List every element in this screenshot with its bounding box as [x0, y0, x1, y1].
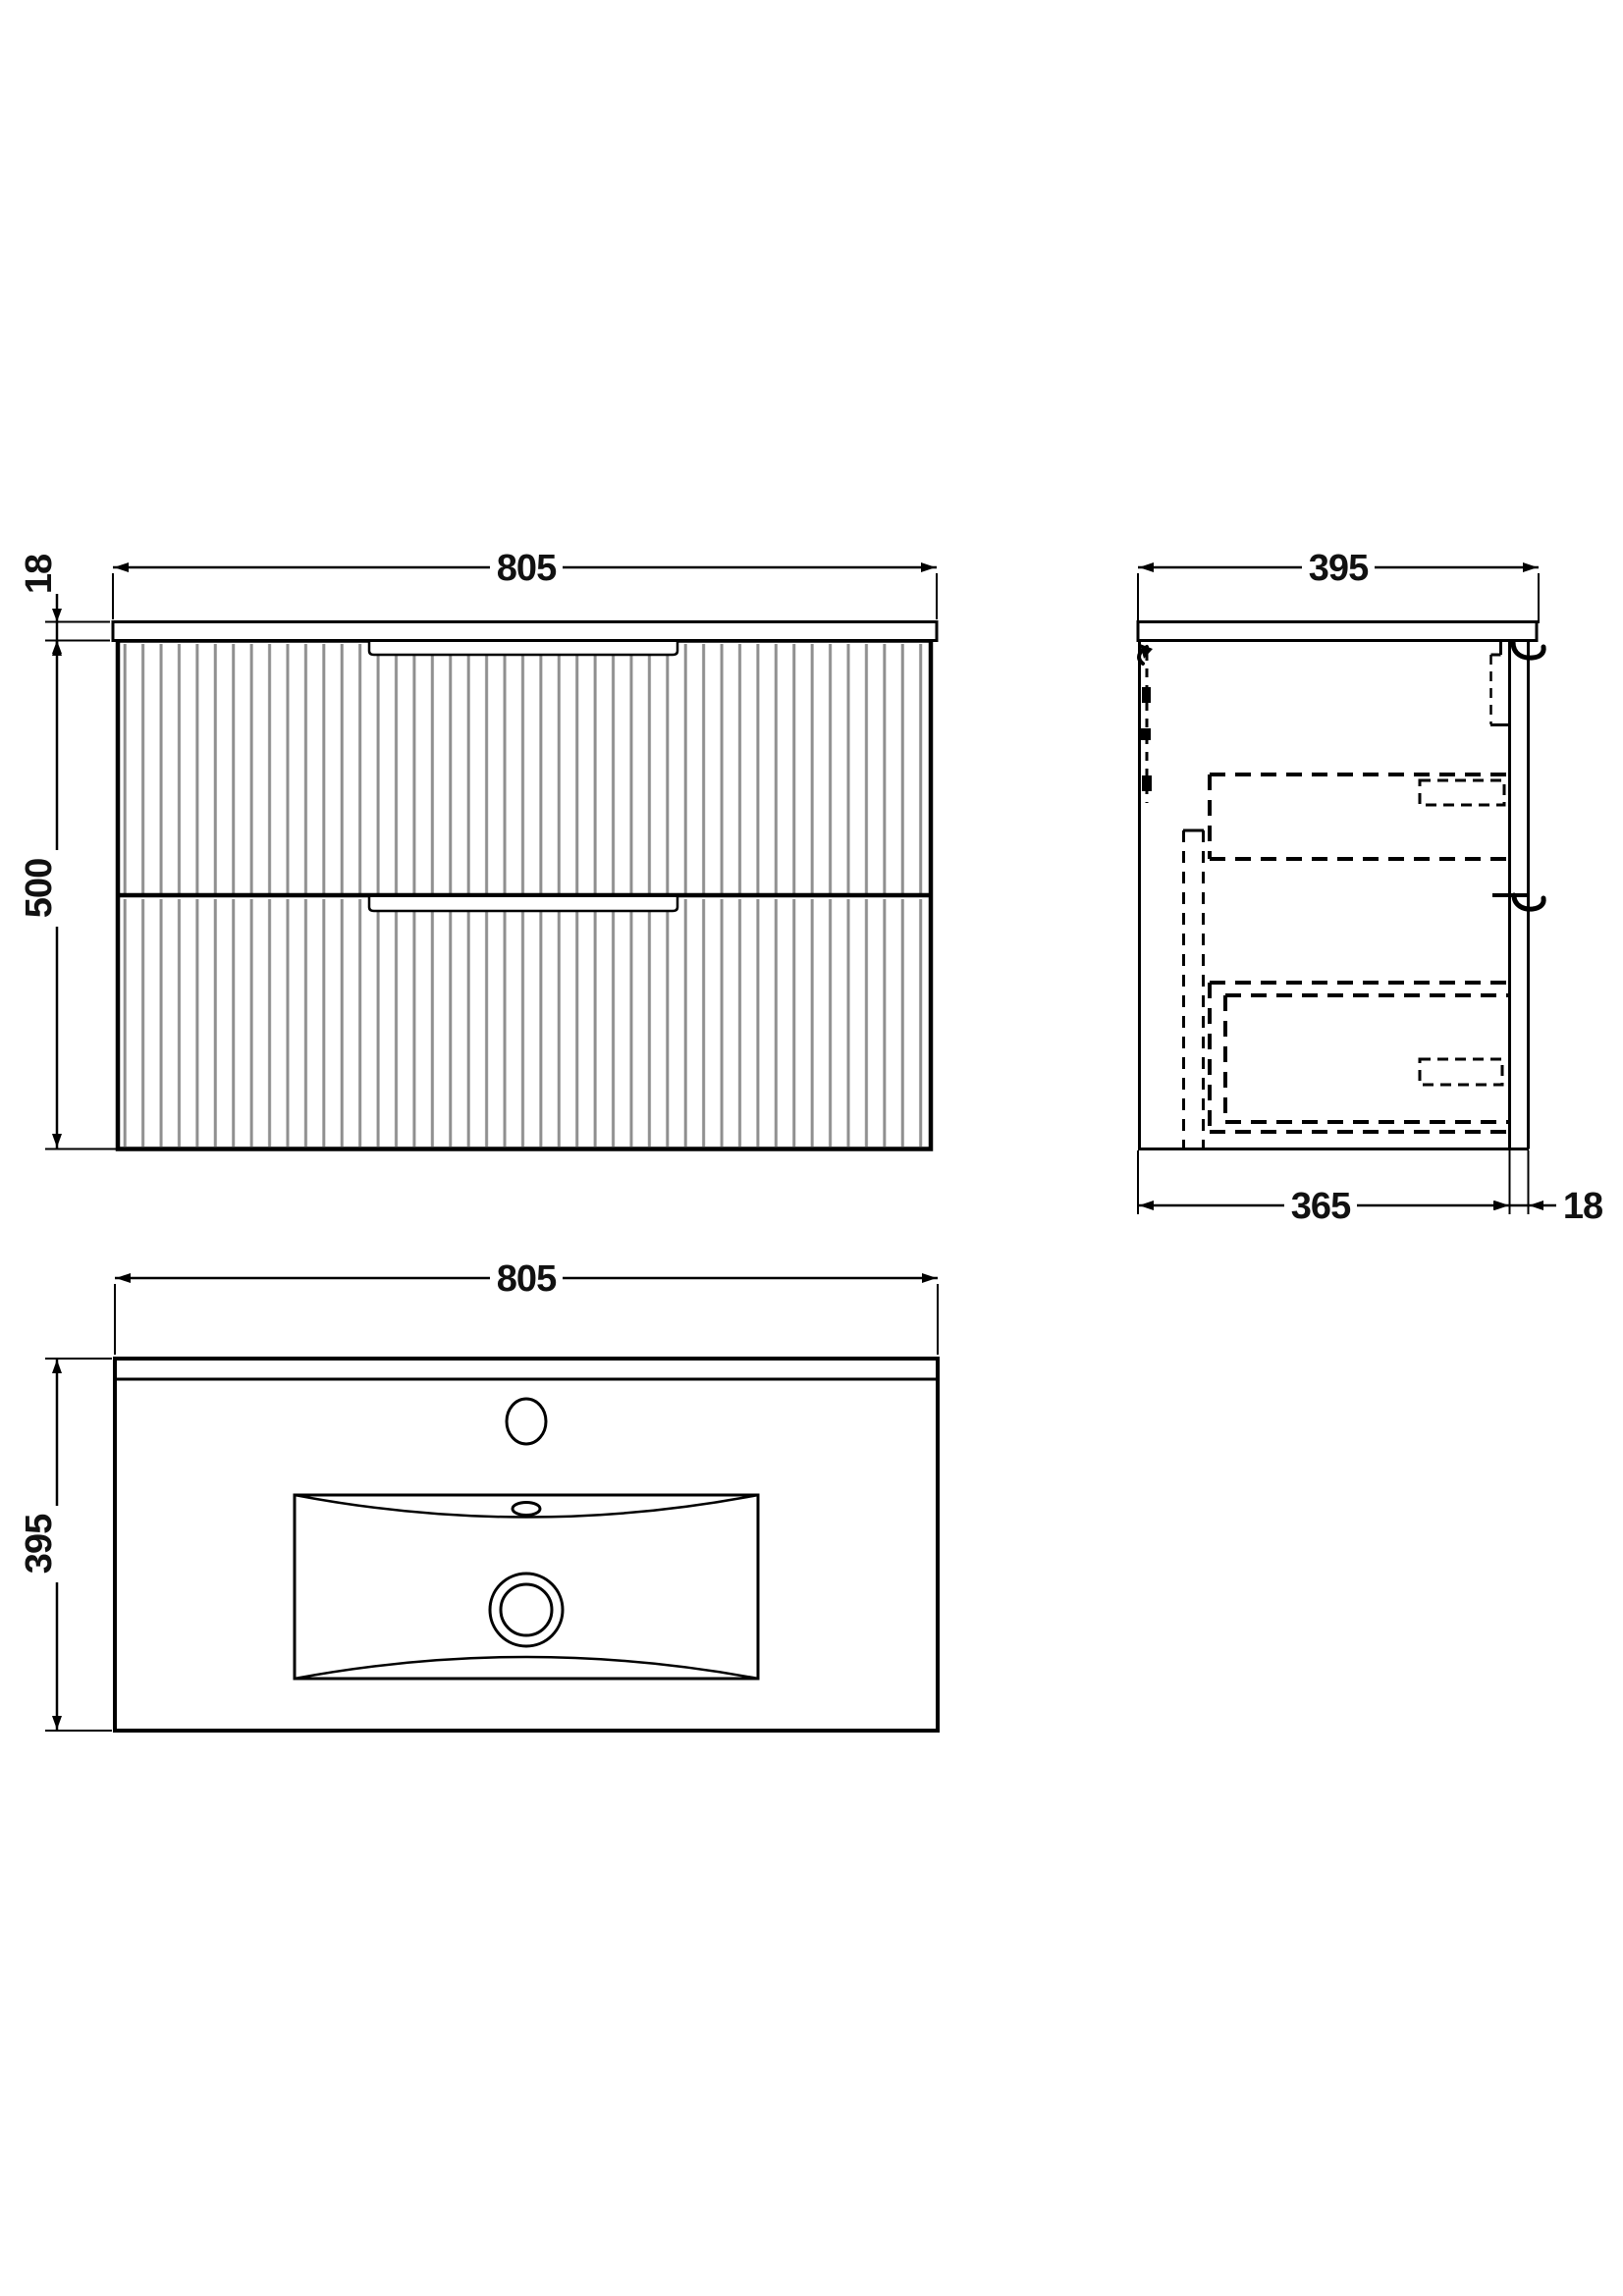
middle-handle-recess	[369, 897, 677, 911]
overflow-slot	[513, 1503, 540, 1516]
top-drawer-runner	[1420, 780, 1504, 805]
plan-width-dimension: 805	[115, 1258, 938, 1355]
top-handle-recess	[369, 642, 677, 655]
vanity-dimension-drawing: 805 18 500	[0, 0, 1623, 2296]
side-body-depth-dimension-label: 365	[1291, 1186, 1351, 1227]
plan-view: 805 395	[19, 1258, 938, 1731]
flute-texture-top-drawer	[121, 644, 928, 893]
front-width-dimension-label: 805	[497, 548, 557, 589]
drain-inner-ring	[501, 1584, 552, 1635]
plan-depth-dimension: 395	[19, 1359, 112, 1731]
front-countertop-thickness-dimension: 18	[19, 555, 110, 654]
front-height-dimension-label: 500	[19, 859, 60, 918]
side-back-thickness-label: 18	[1563, 1186, 1602, 1227]
front-view: 805 18 500	[19, 548, 937, 1149]
bottom-drawer-hidden-outline	[1210, 983, 1509, 1132]
side-depth-dimension-label: 395	[1309, 548, 1369, 589]
side-back-thickness-dimension: 18	[1494, 1186, 1602, 1227]
side-depth-dimension: 395	[1138, 548, 1539, 623]
side-view: 395 365 18	[1138, 548, 1602, 1227]
front-countertop-thickness-label: 18	[19, 555, 60, 594]
front-fixing-clip	[1139, 644, 1153, 803]
front-width-dimension: 805	[113, 548, 937, 619]
side-body-depth-dimension: 365	[1138, 1150, 1509, 1227]
top-drawer-hidden-outline	[1210, 774, 1509, 859]
drawer-front-channel	[1183, 830, 1204, 1148]
front-height-dimension: 500	[19, 641, 116, 1149]
hanging-rail-notch	[1490, 642, 1510, 725]
front-countertop	[113, 622, 937, 641]
side-countertop	[1138, 622, 1537, 641]
technical-drawing-page: 805 18 500	[0, 0, 1623, 2296]
bottom-drawer-runner	[1420, 1059, 1502, 1085]
flute-texture-bottom-drawer	[121, 899, 928, 1147]
plan-depth-dimension-label: 395	[19, 1514, 60, 1574]
plan-width-dimension-label: 805	[497, 1258, 557, 1300]
tap-hole	[507, 1399, 546, 1444]
